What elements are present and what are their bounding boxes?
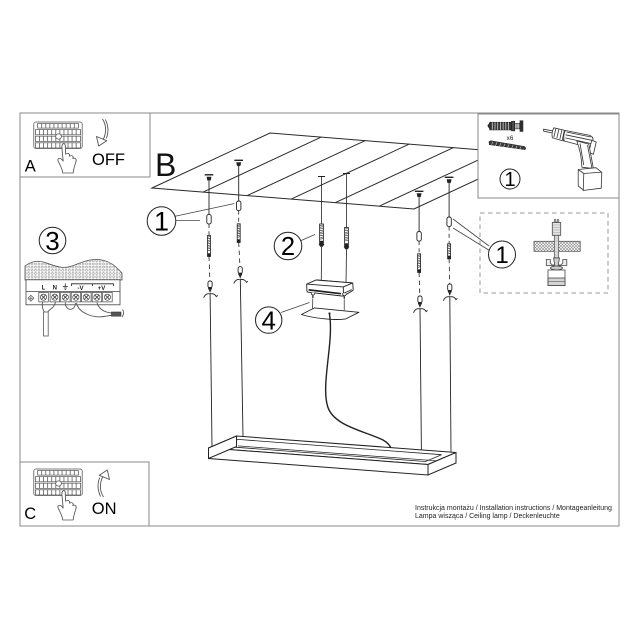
svg-text:N: N <box>53 286 57 292</box>
svg-text:Instrukcja montażu / Installat: Instrukcja montażu / Installation instru… <box>415 505 612 512</box>
svg-text:1: 1 <box>504 169 515 191</box>
svg-text:OFF: OFF <box>92 151 125 169</box>
svg-text:Lampa wisząca / Ceiling lamp /: Lampa wisząca / Ceiling lamp / Deckenleu… <box>415 513 560 520</box>
svg-text:1: 1 <box>154 207 169 237</box>
svg-text:B: B <box>155 147 176 183</box>
svg-text:4: 4 <box>261 305 275 335</box>
svg-text:L: L <box>42 286 46 292</box>
svg-text:x6: x6 <box>507 135 514 142</box>
svg-text:+V: +V <box>98 286 106 292</box>
svg-text:1: 1 <box>495 242 508 269</box>
svg-text:3: 3 <box>45 226 59 256</box>
svg-text:C: C <box>24 505 36 523</box>
svg-text:ON: ON <box>92 500 117 518</box>
svg-text:2: 2 <box>281 233 295 261</box>
svg-text:A: A <box>25 158 36 176</box>
svg-text:-V: -V <box>78 286 84 292</box>
